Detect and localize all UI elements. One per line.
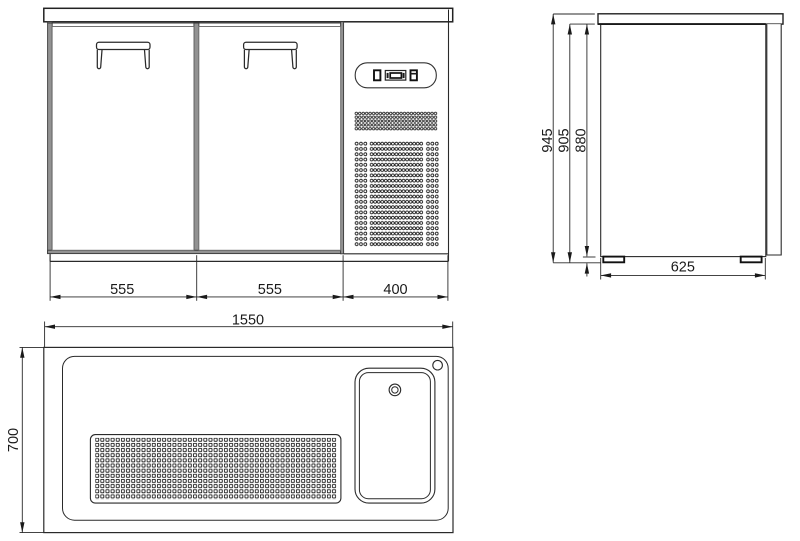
svg-text:945: 945 — [540, 128, 556, 152]
svg-text:880: 880 — [573, 128, 589, 152]
svg-text:1550: 1550 — [232, 313, 264, 329]
svg-text:400: 400 — [383, 282, 407, 298]
svg-text:625: 625 — [671, 260, 695, 276]
svg-text:905: 905 — [556, 128, 572, 152]
svg-text:555: 555 — [110, 282, 134, 298]
svg-text:700: 700 — [6, 428, 22, 452]
svg-text:555: 555 — [258, 282, 282, 298]
